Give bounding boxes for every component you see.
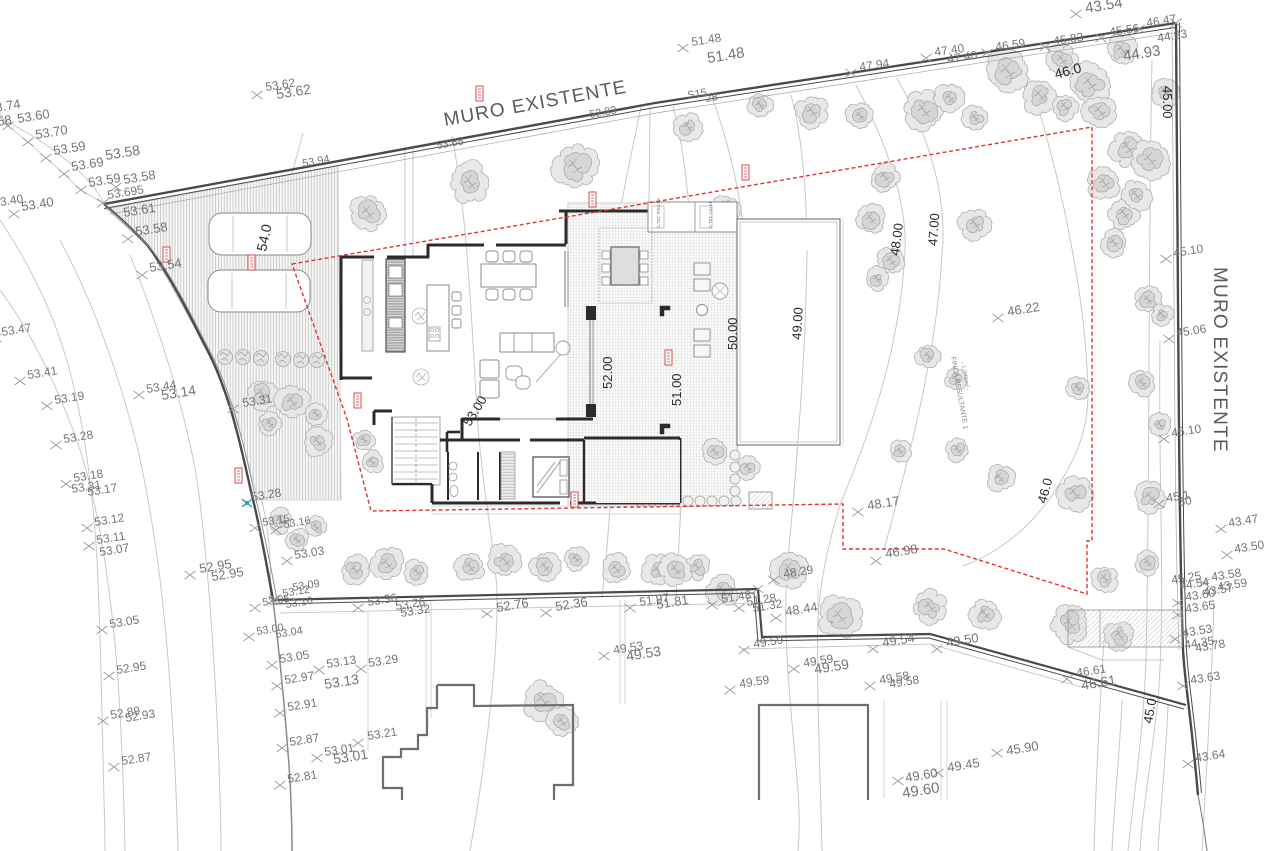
svg-text:MURO EXISTENTE: MURO EXISTENTE (1209, 267, 1230, 453)
svg-text:45.00: 45.00 (1160, 86, 1175, 119)
svg-text:47.00: 47.00 (925, 213, 942, 247)
svg-text:30: 30 (1177, 493, 1193, 509)
svg-text:49.00: 49.00 (789, 307, 806, 340)
svg-text:50.00: 50.00 (725, 317, 740, 350)
svg-text:52.00: 52.00 (600, 356, 615, 389)
svg-text:51.00: 51.00 (669, 373, 684, 406)
svg-text:C.TEC CALEF: C.TEC CALEF (708, 200, 713, 228)
svg-text:28: 28 (704, 91, 718, 105)
